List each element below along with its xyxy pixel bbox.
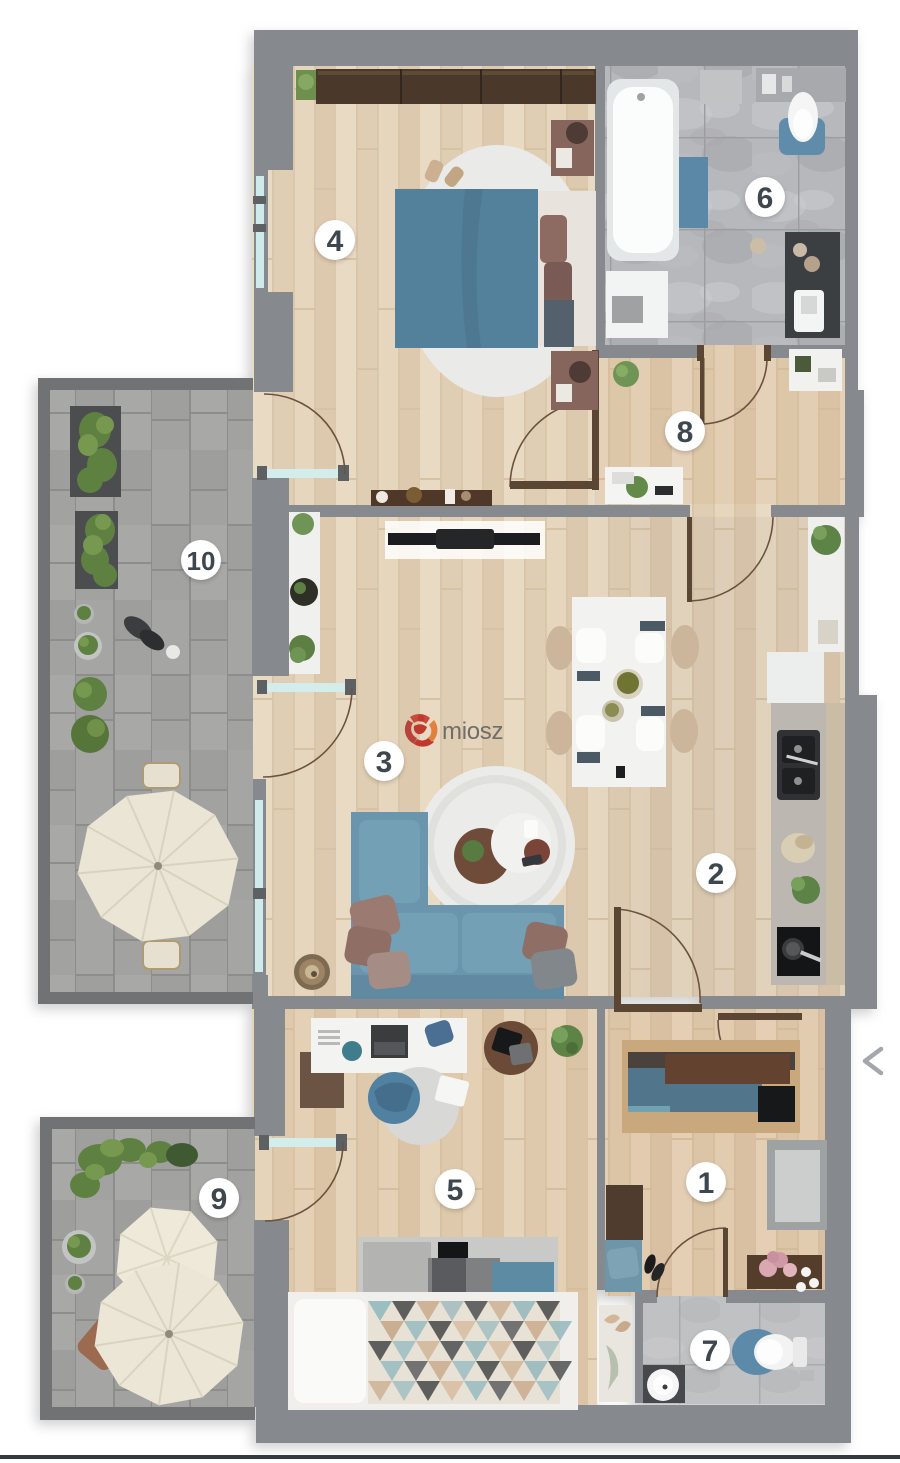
svg-text:miosz: miosz [442,718,503,745]
svg-text:1: 1 [698,1167,715,1200]
svg-text:4: 4 [327,225,344,258]
svg-text:2: 2 [708,858,725,891]
svg-text:7: 7 [702,1335,719,1368]
svg-text:5: 5 [447,1174,464,1207]
svg-text:6: 6 [757,182,774,215]
svg-text:3: 3 [376,746,393,779]
svg-text:8: 8 [677,416,694,449]
svg-text:10: 10 [187,546,216,576]
svg-text:9: 9 [211,1183,228,1216]
